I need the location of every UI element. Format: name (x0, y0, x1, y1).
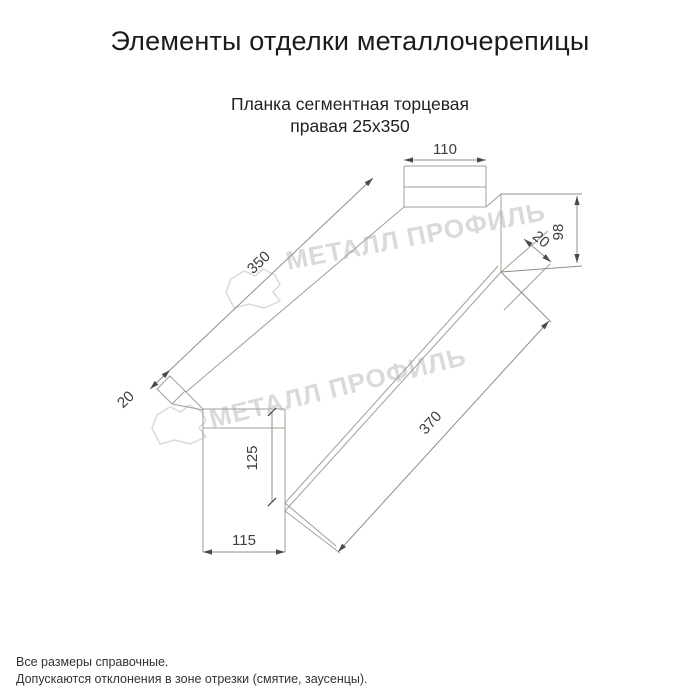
dim-label-115: 115 (232, 532, 256, 549)
watermark-text-upper: МЕТАЛЛ ПРОФИЛЬ (283, 196, 548, 276)
dim-label-110: 110 (433, 141, 457, 158)
footer-note-2: Допускаются отклонения в зоне отрезки (с… (16, 671, 368, 688)
arrow-110-right (477, 157, 486, 162)
watermark-upper: МЕТАЛЛ ПРОФИЛЬ (226, 196, 548, 308)
arrow-115-right (276, 549, 285, 554)
arrow-98-bottom (574, 254, 579, 263)
dim-label-125: 125 (244, 445, 261, 470)
ext-370-top (501, 272, 551, 322)
dim-350-line (170, 178, 373, 370)
footer-note-1: Все размеры справочные. (16, 654, 368, 671)
drawing-page: Элементы отделки металлочерепицы Планка … (0, 0, 700, 700)
metall-profil-logo-icon (152, 405, 206, 444)
footer-notes: Все размеры справочные. Допускаются откл… (16, 654, 368, 688)
band-bottom-tip-edge-2 (285, 503, 336, 546)
arrow-115-left (203, 549, 212, 554)
dim-label-20-left: 20 (114, 388, 138, 412)
arrow-98-top (574, 196, 579, 205)
left-lip-flap (157, 376, 185, 404)
technical-drawing: МЕТАЛЛ ПРОФИЛЬ МЕТАЛЛ ПРОФИЛЬ (0, 0, 700, 700)
arrow-110-left (404, 157, 413, 162)
dimension-labels: 110 350 20 98 20 370 125 115 (114, 141, 567, 549)
dim-label-370: 370 (416, 408, 445, 438)
ext-98-bottom (501, 266, 582, 272)
band-bottom-tip-edge-1 (285, 511, 340, 553)
